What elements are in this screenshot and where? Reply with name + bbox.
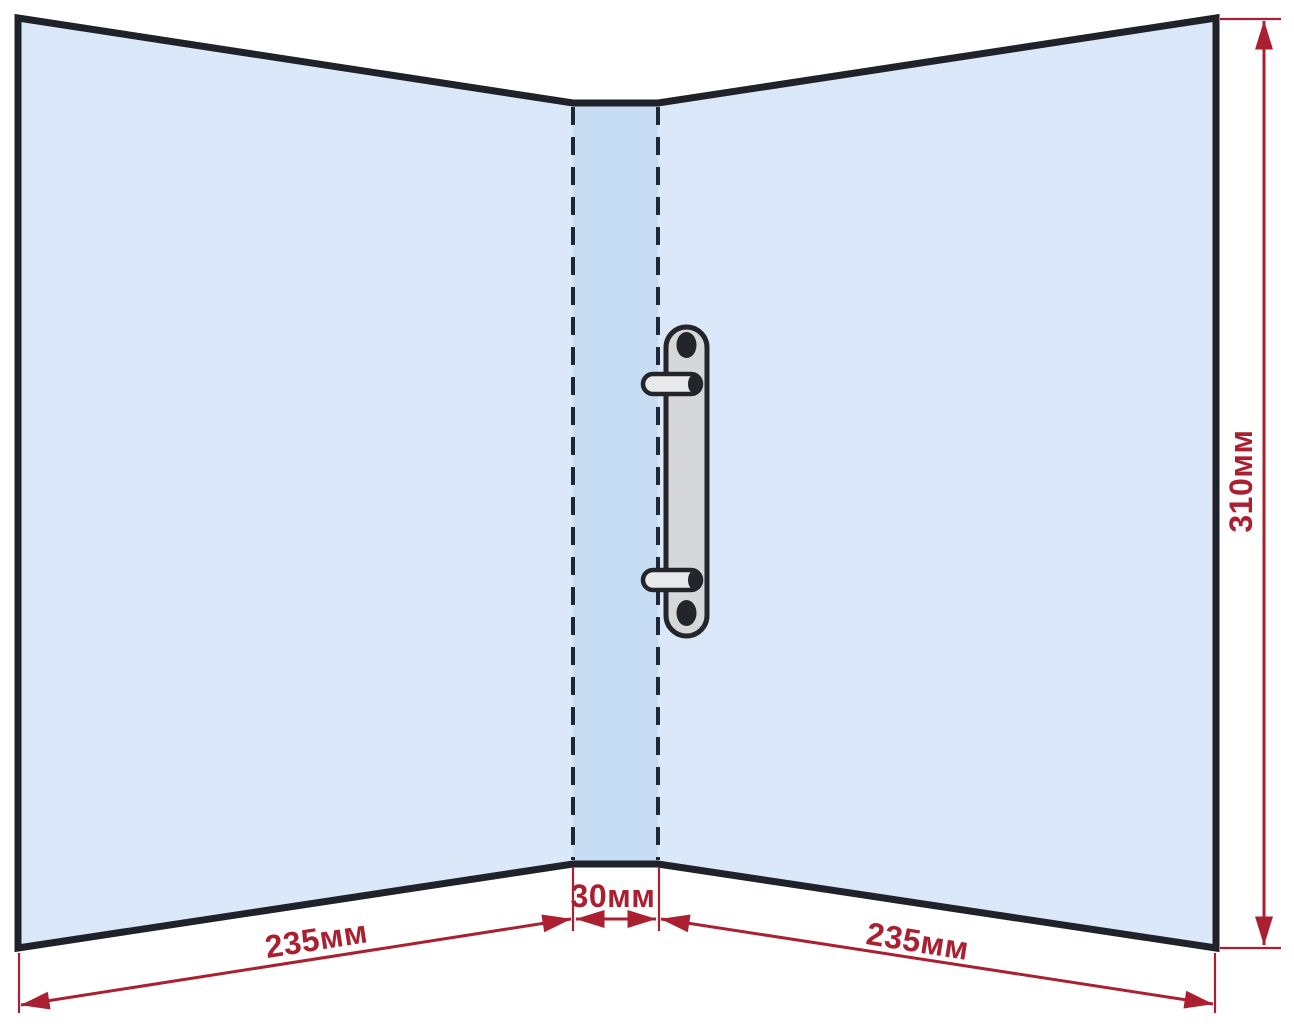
spine-panel <box>573 107 658 861</box>
spine-width-label: 30мм <box>571 878 656 914</box>
left-width-label: 235мм <box>262 913 370 965</box>
bottom-ring-end <box>688 570 702 590</box>
bottom-rivet <box>677 600 697 626</box>
binder <box>18 18 1216 948</box>
diagram-canvas: 310мм 235мм 30мм 235мм <box>0 0 1294 1034</box>
height-label: 310мм <box>1223 429 1259 532</box>
top-ring-end <box>688 374 702 394</box>
binder-dimension-diagram: 310мм 235мм 30мм 235мм <box>0 0 1294 1034</box>
dimension-height: 310мм <box>1220 19 1281 948</box>
right-width-label: 235мм <box>864 915 972 967</box>
top-rivet <box>677 332 697 358</box>
